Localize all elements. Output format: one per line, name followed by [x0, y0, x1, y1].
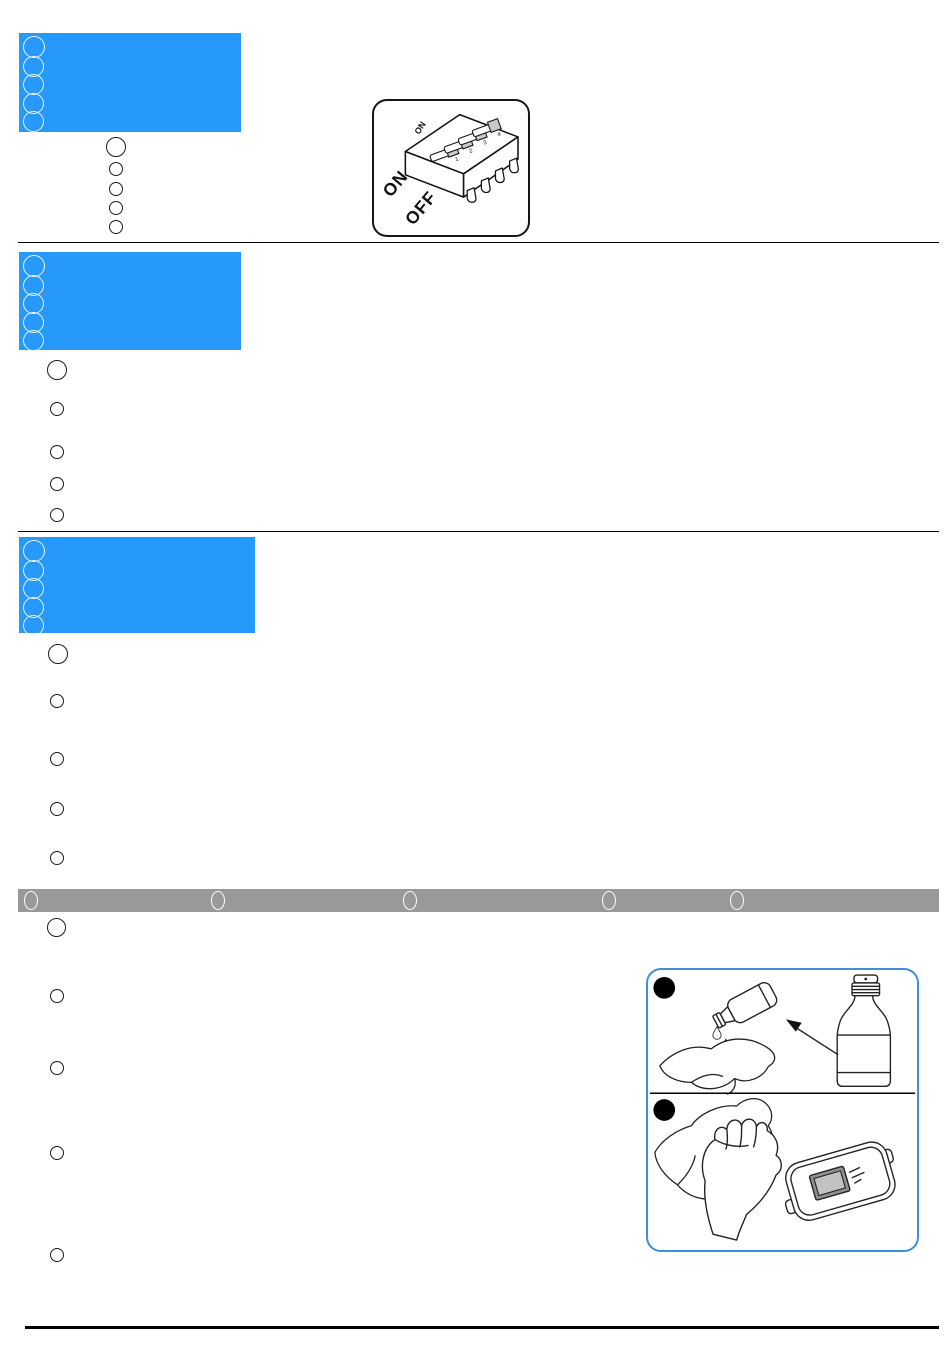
redacted-list-bullet [50, 477, 64, 491]
section-3-header [19, 537, 255, 633]
device-icon [775, 1137, 903, 1226]
redacted-list-bullet [47, 360, 67, 380]
cleaning-figure-drawing [648, 970, 917, 1250]
redacted-bar-bullet [602, 891, 616, 910]
redacted-list-bullet [109, 182, 123, 196]
redacted-list-bullet [50, 694, 64, 708]
cloth-icon [660, 1039, 775, 1094]
hand-icon [702, 1119, 781, 1240]
off-label: OFF [401, 187, 441, 229]
section-2-header [19, 252, 241, 350]
redacted-list-bullet [50, 1061, 64, 1075]
redacted-list-bullet [109, 220, 123, 234]
redacted-list-bullet [50, 989, 64, 1003]
page-bottom-rule [25, 1326, 939, 1329]
section-1-header [19, 33, 241, 132]
dip-switch-body-label: ON [412, 120, 428, 136]
redacted-list-bullet [50, 445, 64, 459]
redacted-list-bullet [48, 644, 68, 664]
redacted-header-bullet [23, 615, 44, 636]
redacted-list-bullet [106, 137, 126, 157]
redacted-bar-bullet [24, 891, 38, 910]
redacted-list-bullet [50, 802, 64, 816]
redacted-list-bullet [47, 918, 66, 937]
redacted-list-bullet [109, 162, 123, 176]
section-2-header-bullets [23, 255, 45, 351]
pouring-bottle-icon [710, 980, 779, 1033]
redacted-header-bullet [23, 293, 44, 314]
step-2-bullet [653, 1099, 675, 1121]
redacted-bar-bullet [403, 891, 417, 910]
redacted-header-bullet [23, 330, 44, 351]
redacted-header-bullet [23, 540, 45, 562]
redacted-list-bullet [109, 201, 123, 215]
redacted-header-bullet [23, 36, 45, 58]
redacted-list-bullet [50, 752, 64, 766]
manual-page: ON 1 2 3 4 ON OFF [0, 0, 950, 1360]
redacted-list-bullet [50, 508, 64, 522]
redacted-bar-bullet [211, 891, 225, 910]
redacted-header-bullet [23, 74, 44, 95]
redacted-header-bullet [23, 255, 45, 277]
redacted-list-bullet [50, 1248, 64, 1262]
section-3-header-bullets [23, 540, 45, 636]
section-1-header-bullets [23, 36, 45, 132]
redacted-header-bullet [23, 578, 44, 599]
dip-switch-icon: ON 1 2 3 4 ON OFF [374, 101, 528, 235]
redacted-header-bullet [23, 111, 44, 132]
gray-divider-bar [18, 889, 939, 912]
step-1-bullet [653, 977, 675, 999]
section-divider-rule-1 [18, 242, 939, 243]
cleaner-bottle-icon [837, 975, 890, 1086]
section-divider-rule-2 [18, 531, 939, 532]
redacted-list-bullet [50, 402, 64, 416]
redacted-list-bullet [50, 1146, 64, 1160]
redacted-list-bullet [50, 851, 64, 865]
dip-switch-figure: ON 1 2 3 4 ON OFF [372, 99, 530, 237]
redacted-bar-bullet [730, 891, 744, 910]
cleaning-instructions-figure [646, 968, 919, 1252]
pour-arrow-icon [786, 1019, 838, 1054]
